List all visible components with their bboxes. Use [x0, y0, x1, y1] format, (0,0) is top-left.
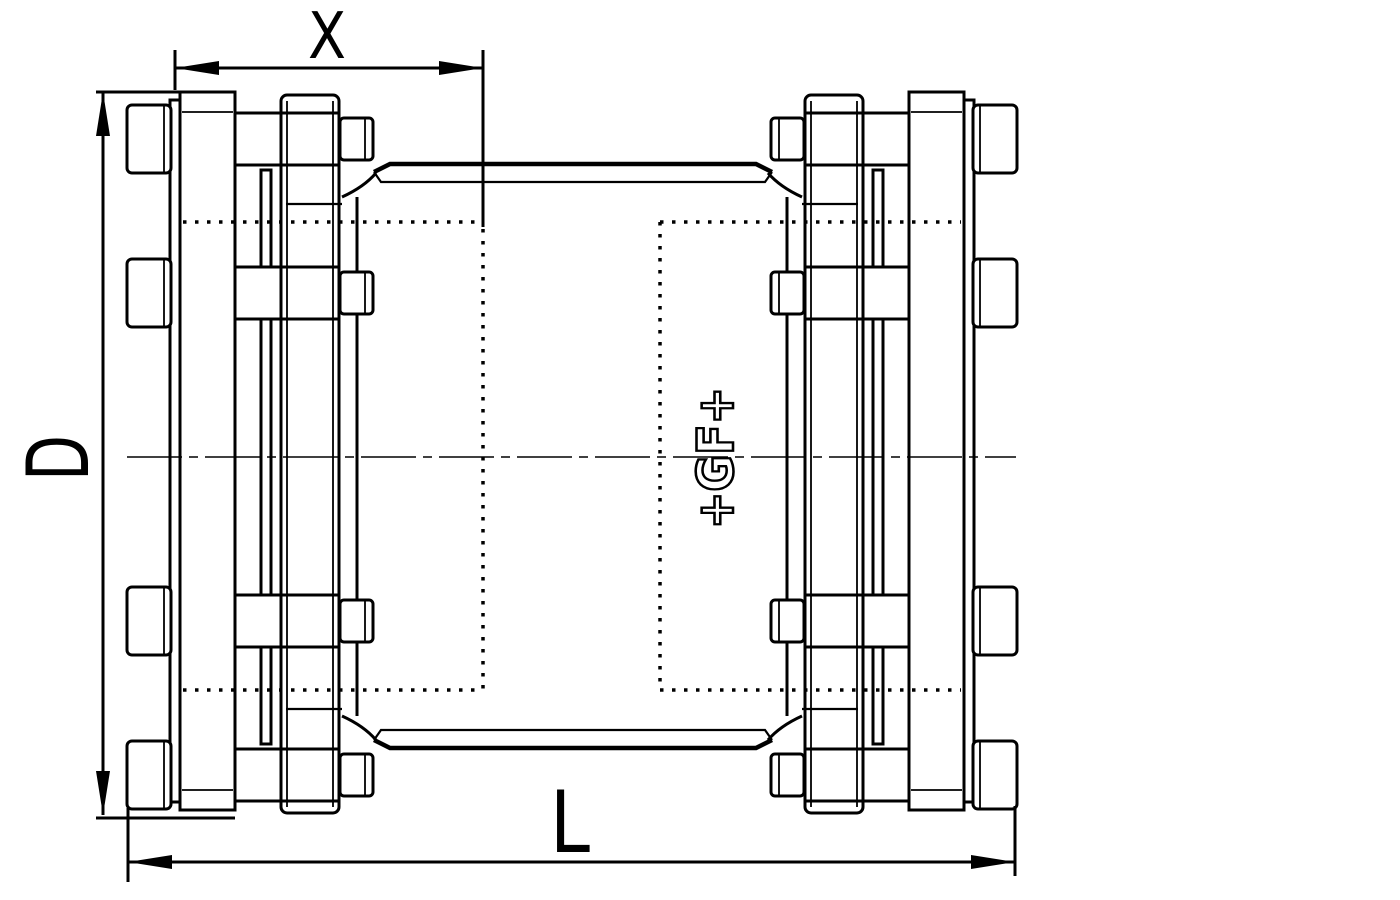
drawing-canvas: +GF+ X D L: [0, 0, 1400, 900]
l-dimension-label: L: [550, 773, 590, 873]
d-arrowhead-top: [96, 92, 110, 136]
gf-logo: +GF+: [687, 387, 745, 529]
sleeve-bottom-inner-line: [374, 730, 772, 740]
right-flange-assembly: [768, 92, 1017, 813]
coupling-drawing: +GF+ X D L: [0, 0, 1400, 900]
x-arrowhead-right: [439, 61, 483, 75]
sleeve-bottom-outline: [374, 740, 772, 748]
left-flange-assembly: [127, 92, 376, 813]
x-dimension-label: X: [308, 0, 346, 74]
sleeve-top-outline: [374, 164, 772, 172]
sleeve-top-inner-line: [374, 172, 772, 182]
l-arrowhead-left: [128, 855, 172, 869]
x-arrowhead-left: [175, 61, 219, 75]
l-arrowhead-right: [971, 855, 1015, 869]
d-arrowhead-bottom: [96, 771, 110, 815]
d-dimension-label: D: [9, 435, 109, 481]
